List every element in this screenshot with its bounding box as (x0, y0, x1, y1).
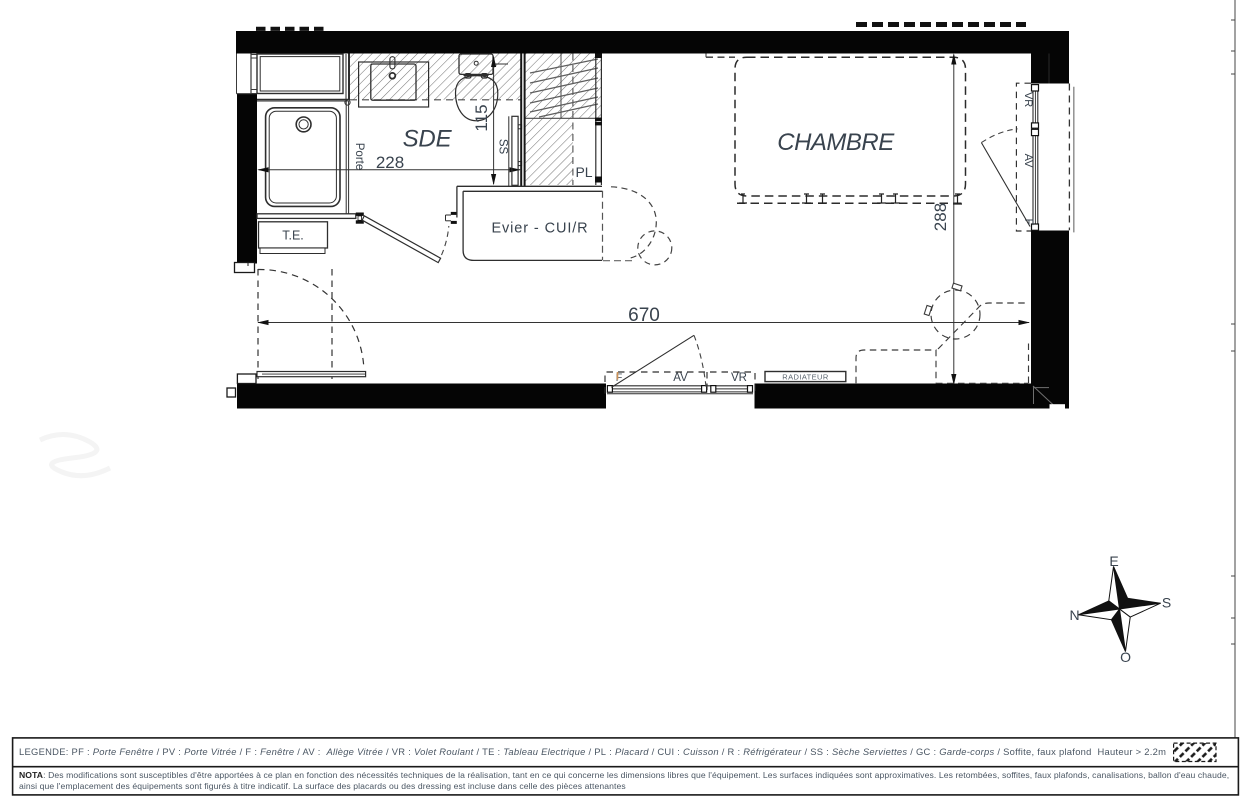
svg-text:F: F (1022, 218, 1034, 225)
svg-text:Porte: Porte (353, 143, 365, 171)
svg-text:N: N (1069, 607, 1079, 623)
svg-text:228: 228 (376, 153, 404, 172)
svg-text:288: 288 (931, 203, 950, 231)
svg-text:RADIATEUR: RADIATEUR (782, 372, 829, 381)
svg-text:T.E.: T.E. (282, 229, 304, 243)
svg-text:AV: AV (673, 372, 688, 384)
svg-text:PL: PL (575, 164, 592, 180)
svg-text:VR: VR (1022, 92, 1034, 107)
svg-text:115: 115 (472, 104, 491, 131)
svg-text:Evier - CUI/R: Evier - CUI/R (491, 221, 588, 237)
svg-text:AV: AV (1022, 154, 1034, 169)
svg-text:SDE: SDE (403, 126, 453, 153)
svg-text:E: E (1109, 553, 1118, 569)
svg-text:S: S (1162, 595, 1171, 611)
svg-text:VR: VR (731, 372, 747, 384)
svg-text:CHAMBRE: CHAMBRE (777, 129, 895, 156)
svg-text:SS: SS (497, 139, 509, 155)
svg-text:670: 670 (628, 305, 660, 326)
svg-text:F: F (616, 372, 623, 384)
svg-text:O: O (1120, 649, 1131, 665)
